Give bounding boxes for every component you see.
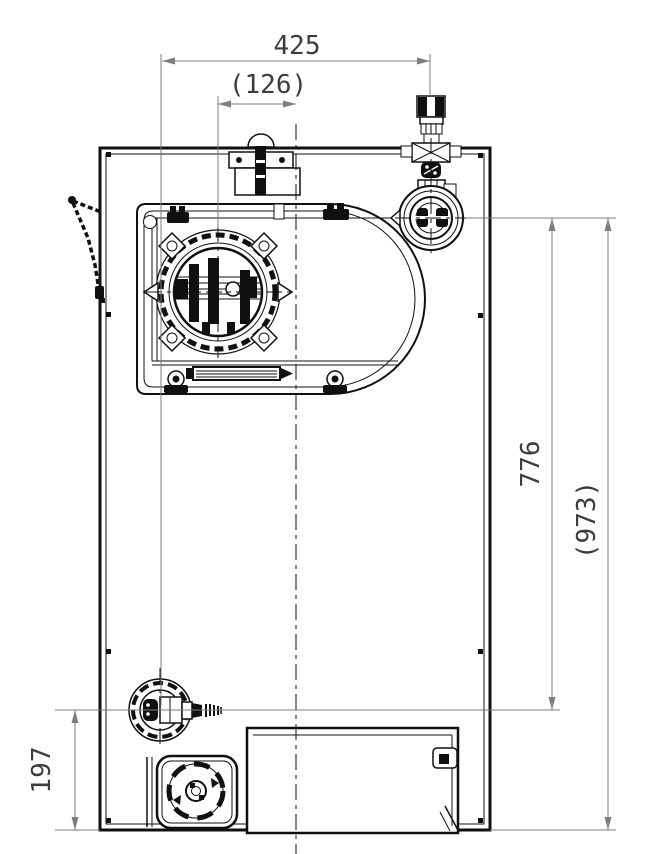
cleanout-flange	[144, 226, 292, 358]
boiler-technical-drawing: 425 (126) 776 (973) 197	[0, 0, 647, 854]
dimension-overall-height: (973)	[572, 218, 612, 830]
dimension-knob-offset-label: (126)	[229, 70, 307, 100]
dimension-right-height-label: 776	[516, 441, 546, 488]
dimension-knob-offset: (126)	[218, 70, 307, 108]
thermostat-knob	[229, 134, 300, 195]
dimension-top-width: 425	[162, 31, 430, 65]
fan-unit	[147, 756, 237, 828]
dimension-bottom-height: 197	[27, 710, 79, 830]
bottom-grille	[186, 367, 293, 380]
dimension-bottom-height-label: 197	[27, 747, 57, 794]
dimension-overall-height-label: (973)	[572, 481, 602, 559]
dimension-right-height: 776	[516, 218, 556, 710]
ash-door-panel	[247, 728, 459, 833]
dimension-top-width-label: 425	[274, 31, 321, 61]
drawing-canvas: 425 (126) 776 (973) 197	[0, 0, 647, 854]
